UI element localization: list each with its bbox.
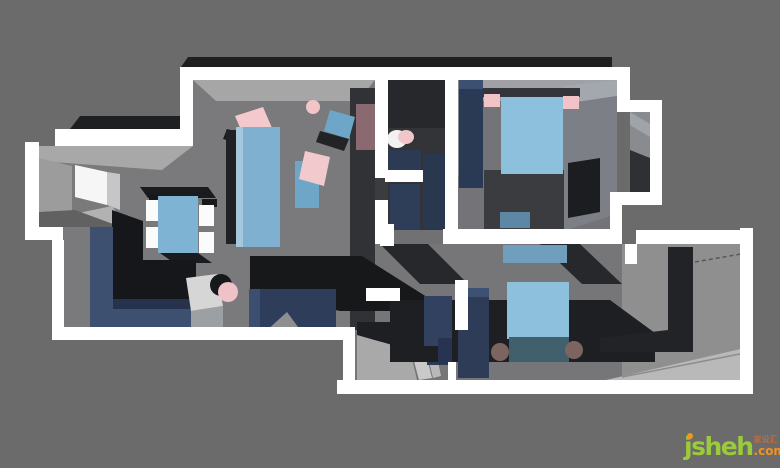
bed2-foot	[509, 337, 569, 362]
living-pink-dot	[306, 100, 320, 114]
bed2-bench	[503, 245, 567, 263]
watermark-brand: jsheh	[684, 434, 753, 459]
wall-bottom	[337, 380, 753, 394]
watermark: jsheh 家设汇 .com	[684, 434, 780, 459]
wall-living-left	[52, 240, 64, 333]
bed2-nightstand1	[491, 343, 509, 361]
living-mauve-cabinet	[356, 104, 375, 150]
wall-bath2-vert	[455, 280, 468, 330]
bath-vanity	[388, 150, 421, 172]
wall-mini-balcony-down	[610, 192, 622, 244]
dining-table	[158, 196, 198, 253]
wing-window-side	[107, 172, 120, 210]
wall-bath2-stub	[380, 224, 394, 246]
wall-living-bottom	[52, 327, 353, 340]
master-bed	[501, 97, 563, 174]
wall-mini-balcony-right	[650, 100, 662, 200]
wall-wing-top	[55, 129, 193, 146]
wall-sep-mid	[443, 229, 620, 244]
wall-bath-divider	[385, 170, 423, 182]
lamp-pink	[218, 282, 238, 302]
bed2-nightstand2	[565, 341, 583, 359]
master-pillow-left	[484, 94, 500, 107]
scene-svg	[0, 0, 780, 468]
wall-right	[740, 228, 753, 394]
sofa-seat-strip	[113, 299, 196, 309]
master-pillow-right	[563, 96, 579, 109]
wall-bath-left-upper	[375, 78, 388, 178]
watermark-suffix: .com	[754, 445, 780, 457]
dining-chair3	[199, 205, 214, 226]
bath-dark-top	[388, 80, 445, 128]
master-wardrobe-top	[459, 80, 483, 89]
bed2-wardrobe-small	[438, 338, 452, 364]
bed2-desk	[500, 212, 530, 228]
master-wardrobe	[459, 80, 483, 188]
console-shadow	[226, 130, 236, 244]
tv-cabinet-side	[249, 289, 260, 331]
wall-bath-right	[445, 77, 458, 230]
ceiling-living	[193, 80, 375, 101]
dining-chair4	[199, 232, 214, 253]
bath-cabinet	[423, 154, 445, 230]
master-right-dark	[568, 158, 600, 218]
roof-band-top	[181, 57, 612, 67]
bath-washer	[390, 184, 420, 230]
bath-toilet-lid	[398, 130, 414, 144]
floor-corridor	[388, 230, 445, 244]
roof-band-wing	[70, 116, 193, 129]
bed2-bed	[507, 282, 569, 339]
wall-sep-right	[636, 230, 753, 244]
wall-wing-bottom	[25, 227, 63, 240]
wall-top	[180, 67, 630, 80]
watermark-badge: 家设汇	[754, 436, 778, 444]
wall-bed2-stub	[448, 362, 456, 382]
wall-balcony-door	[625, 244, 637, 264]
wall-bath2-horiz	[366, 288, 400, 301]
watermark-j-dot-icon	[687, 433, 693, 439]
floorplan-render: jsheh 家设汇 .com	[0, 0, 780, 468]
console-blue-edge	[236, 127, 243, 247]
wall-wing-left	[25, 142, 39, 240]
